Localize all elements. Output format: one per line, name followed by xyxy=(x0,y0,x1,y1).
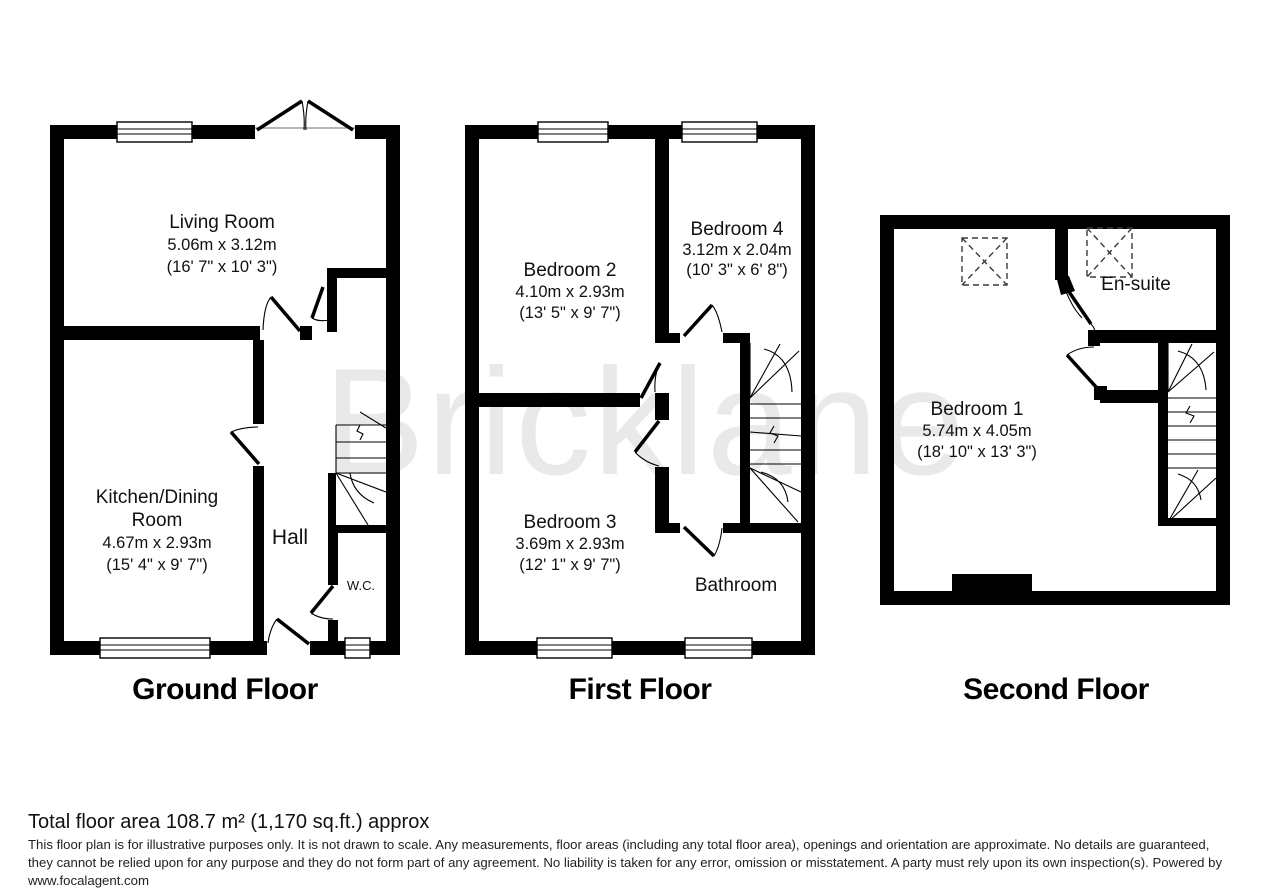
kitchen-dim-ft: (15' 4" x 9' 7") xyxy=(106,556,207,574)
bedroom3-dim-ft: (12' 1" x 9' 7") xyxy=(519,556,620,574)
wc-label: W.C. xyxy=(347,578,375,593)
door xyxy=(268,619,309,644)
disclaimer-line-1: This floor plan is for illustrative purp… xyxy=(28,837,1209,852)
window xyxy=(117,122,192,142)
window xyxy=(685,638,752,658)
bedroom2-dim-ft: (13' 5" x 9' 7") xyxy=(519,304,620,322)
door xyxy=(1063,283,1095,331)
window xyxy=(538,122,608,142)
ensuite-label: En-suite xyxy=(1101,274,1171,295)
kitchen-dim-m: 4.67m x 2.93m xyxy=(102,534,211,552)
window xyxy=(345,638,370,658)
door xyxy=(684,527,722,556)
bedroom1-dim-m: 5.74m x 4.05m xyxy=(922,422,1031,440)
footer: Total floor area 108.7 m² (1,170 sq.ft.)… xyxy=(27,811,1222,888)
floor-titles: Ground Floor First Floor Second Floor xyxy=(132,673,1149,706)
floorplan-canvas: Bricklane xyxy=(0,0,1280,895)
living-room-name: Living Room xyxy=(169,212,275,233)
bedroom3-dim-m: 3.69m x 2.93m xyxy=(515,535,624,553)
second-floor-stairs xyxy=(1168,343,1216,522)
bedroom1-name: Bedroom 1 xyxy=(931,399,1024,420)
door xyxy=(263,297,300,331)
total-area-text: Total floor area 108.7 m² (1,170 sq.ft.)… xyxy=(28,811,429,833)
second-floor-plan: Bedroom 1 5.74m x 4.05m (18' 10" x 13' 3… xyxy=(880,215,1230,605)
hall-label: Hall xyxy=(272,526,308,549)
door xyxy=(1067,347,1097,388)
bedroom4-dim-ft: (10' 3" x 6' 8") xyxy=(686,261,787,279)
watermark-text: Bricklane xyxy=(323,337,966,507)
window xyxy=(100,638,210,658)
bedroom1-dim-ft: (18' 10" x 13' 3") xyxy=(917,443,1037,461)
window xyxy=(682,122,757,142)
living-room-dim-m: 5.06m x 3.12m xyxy=(167,236,276,254)
door xyxy=(311,586,333,619)
first-floor-title: First Floor xyxy=(569,673,713,706)
ground-floor-title: Ground Floor xyxy=(132,673,318,706)
bedroom2-name: Bedroom 2 xyxy=(524,260,617,281)
front-door xyxy=(255,101,355,130)
bathroom-label: Bathroom xyxy=(695,575,777,596)
skylight xyxy=(1087,228,1132,277)
kitchen-name-line1: Kitchen/Dining xyxy=(96,487,219,508)
skylight xyxy=(962,238,1007,285)
door xyxy=(684,305,722,336)
disclaimer-line-2: they cannot be relied upon for any purpo… xyxy=(28,855,1222,870)
bedroom4-dim-m: 3.12m x 2.04m xyxy=(682,241,791,259)
kitchen-name-line2: Room xyxy=(132,510,183,531)
bedroom4-name: Bedroom 4 xyxy=(691,219,784,240)
window xyxy=(537,638,612,658)
living-room-dim-ft: (16' 7" x 10' 3") xyxy=(167,258,278,276)
door xyxy=(231,427,259,464)
bedroom2-dim-m: 4.10m x 2.93m xyxy=(515,283,624,301)
second-floor-title: Second Floor xyxy=(963,673,1150,706)
disclaimer-line-3: www.focalagent.com xyxy=(27,873,149,888)
bedroom3-name: Bedroom 3 xyxy=(524,512,617,533)
